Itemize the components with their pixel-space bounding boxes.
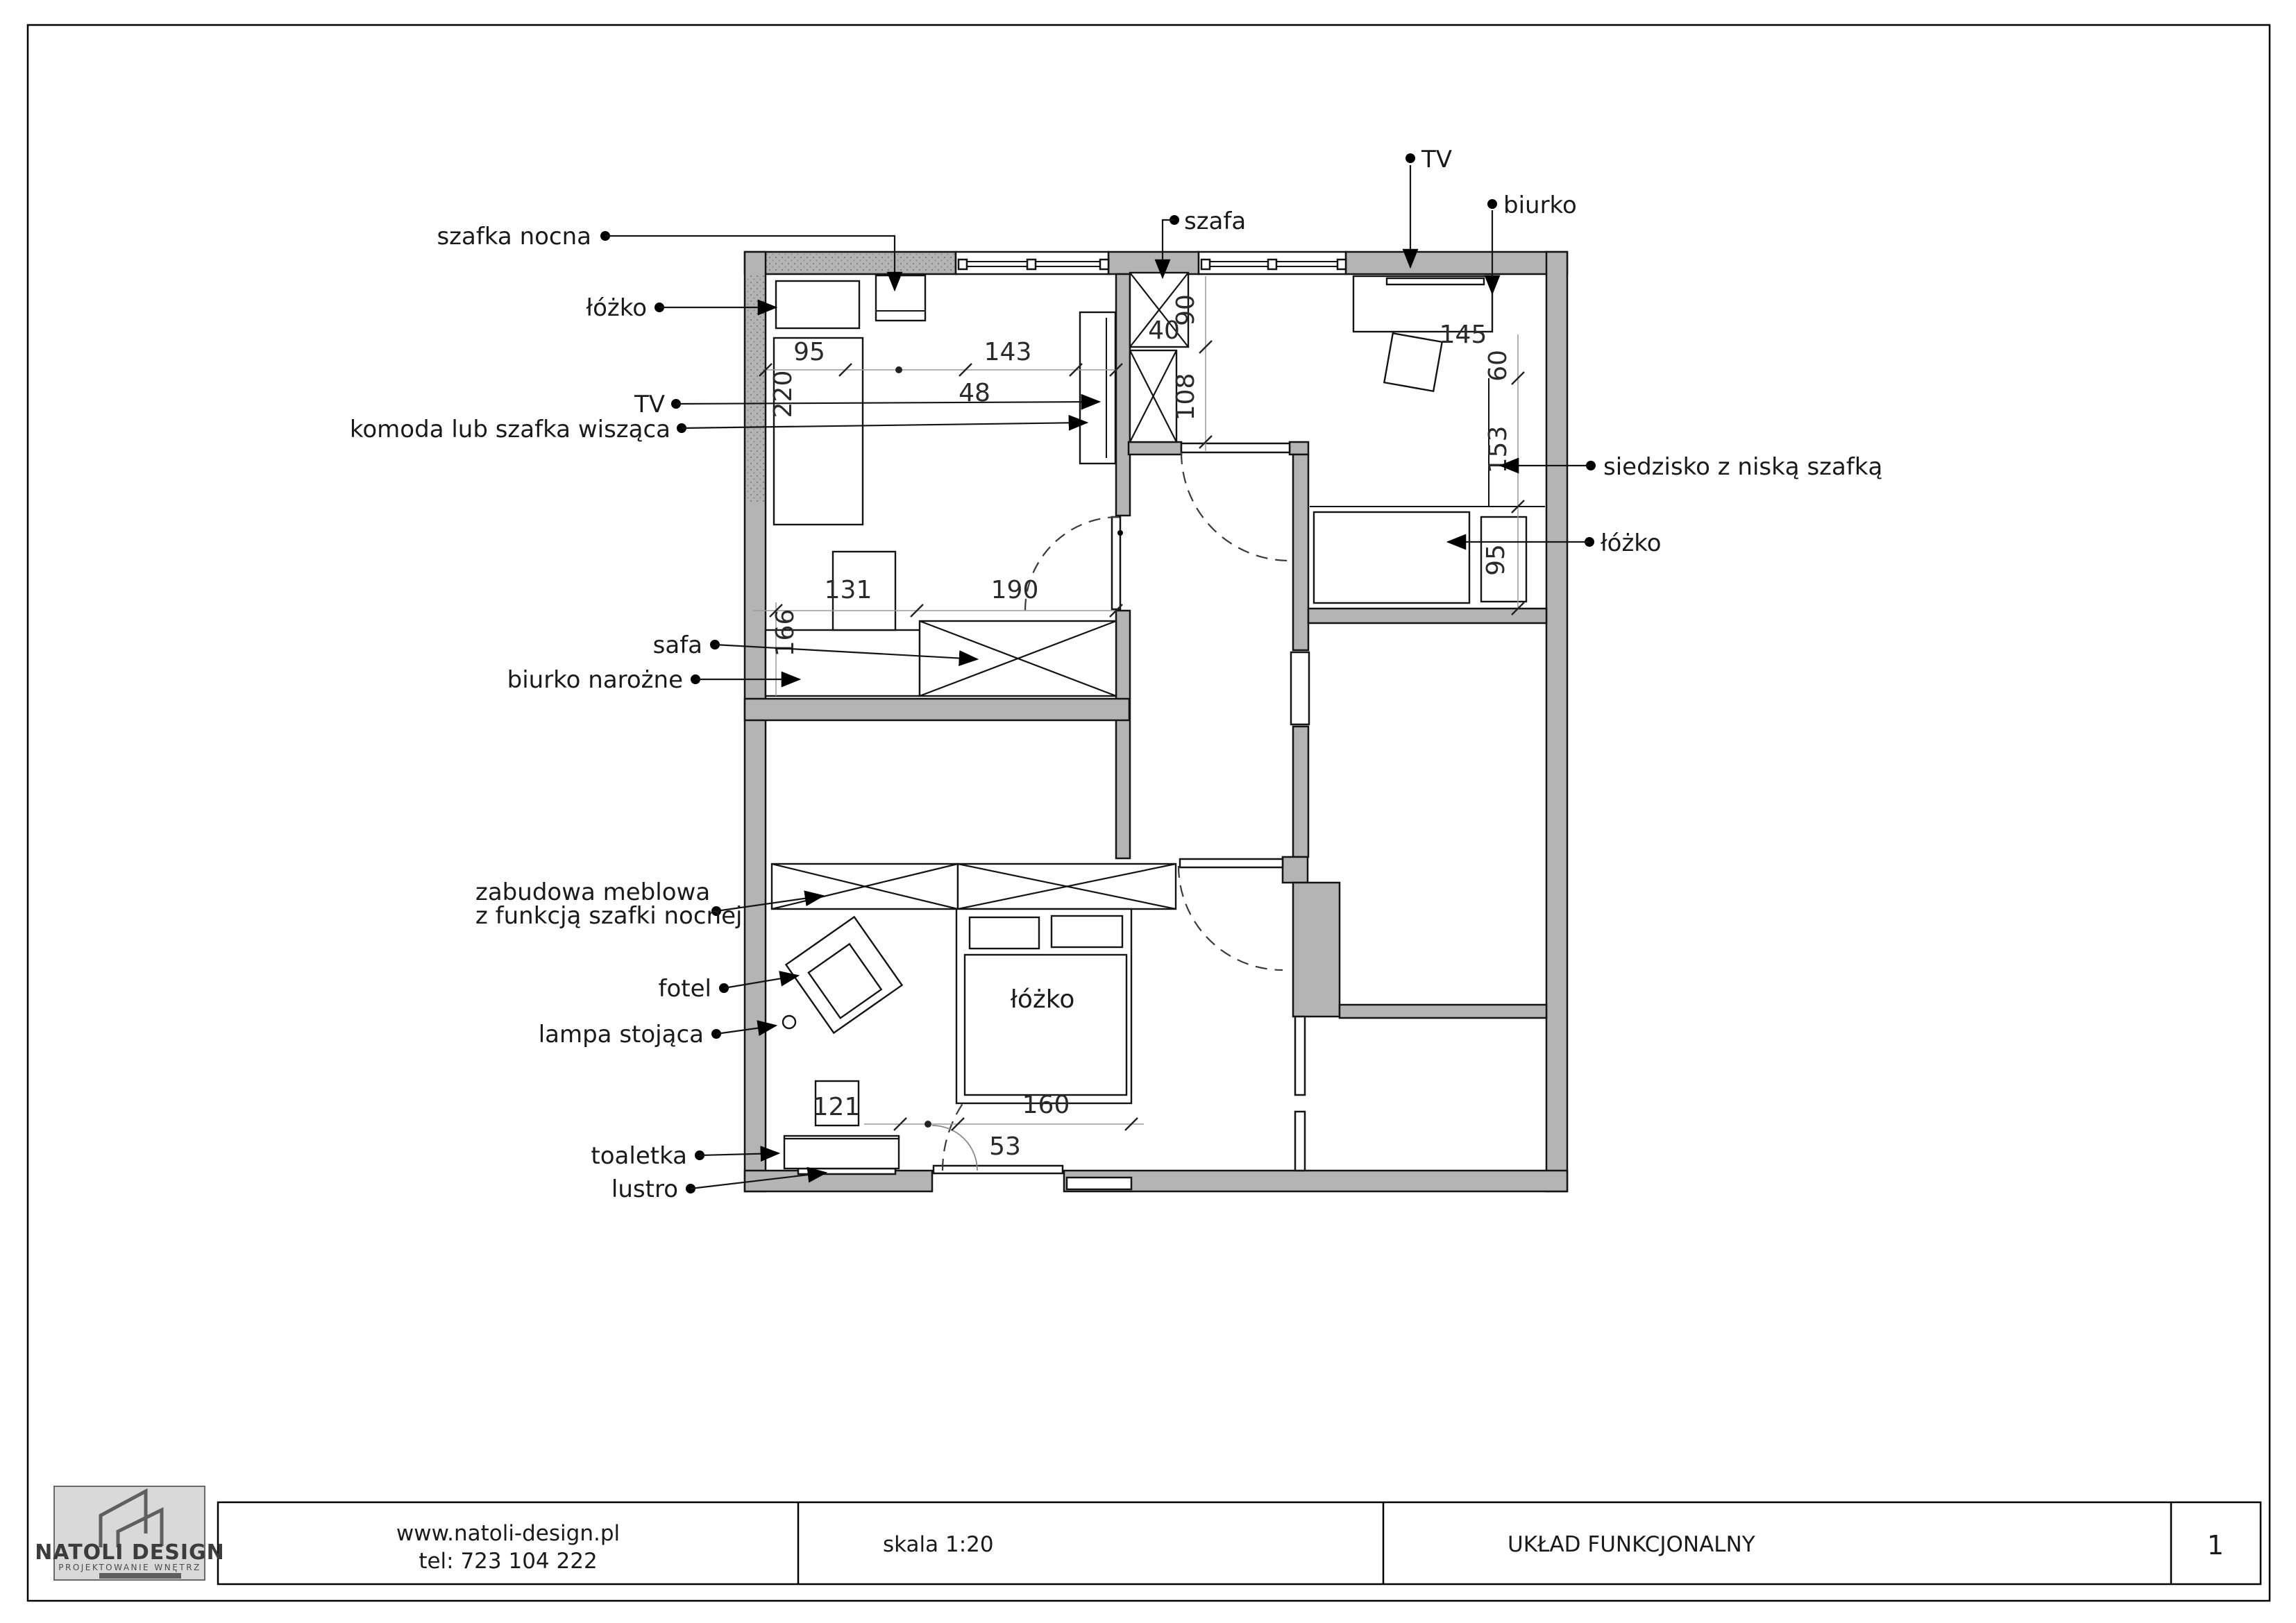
label-biurko: biurko [1503, 192, 1577, 219]
door-arc-bedroom2 [1179, 866, 1283, 970]
dim-90: 90 [1172, 294, 1200, 326]
label-toaletka: toaletka [591, 1142, 687, 1170]
floor-plan-drawing: 95 143 48 220 131 190 166 40 90 108 145 … [0, 0, 2296, 1623]
logo-company-subtitle: PROJEKTOWANIE WNĘTRZ [58, 1563, 201, 1572]
bed1-headboard [776, 281, 859, 328]
door-arc-balcony-leaf [932, 1125, 977, 1171]
dim-145: 145 [1440, 321, 1487, 349]
company-logo: NATOLI DESIGN PROJEKTOWANIE WNĘTRZ [35, 1486, 225, 1580]
dim-95-bed3: 95 [1482, 544, 1510, 576]
dim-220: 220 [769, 371, 797, 418]
footer-scale: skala 1:20 [883, 1532, 994, 1557]
floor-plan-sheet: 95 143 48 220 131 190 166 40 90 108 145 … [0, 0, 2296, 1623]
floor-lamp [783, 1016, 795, 1028]
dim-160: 160 [1022, 1091, 1070, 1119]
label-siedzisko: siedzisko z niską szafką [1603, 453, 1882, 481]
tv-sideboard [1080, 312, 1115, 464]
label-szafa: szafa [1184, 207, 1246, 235]
dim-131: 131 [825, 576, 872, 604]
door-arc-room1 [1025, 517, 1119, 611]
title-block: NATOLI DESIGN PROJEKTOWANIE WNĘTRZ www.n… [35, 1486, 2261, 1584]
desk-chair-room3 [1384, 333, 1442, 391]
tv-wall-room3 [1387, 278, 1484, 284]
logo-company-name: NATOLI DESIGN [35, 1540, 225, 1565]
footer-url: www.natoli-design.pl [396, 1521, 620, 1546]
armchair [786, 917, 902, 1033]
label-tv-room1: TV [634, 391, 665, 418]
label-lampa: lampa stojąca [539, 1021, 704, 1048]
dressing-table [784, 1136, 899, 1169]
dim-190: 190 [991, 576, 1039, 604]
dim-143: 143 [984, 338, 1032, 366]
label-komoda: komoda lub szafka wisząca [350, 416, 670, 443]
dim-121: 121 [813, 1093, 861, 1121]
label-lozko-room3: łóżko [1601, 529, 1662, 557]
label-tv-top: TV [1421, 146, 1452, 173]
label-szafka-nocna: szafka nocna [437, 223, 591, 250]
bed2-pillow-left [970, 917, 1039, 949]
nightstand [876, 275, 925, 321]
furniture-bedroom2 [772, 864, 1176, 1169]
label-lozko-bedroom2: łóżko [1011, 985, 1075, 1014]
label-zabudowa-line2: z funkcją szafki nocnej [475, 902, 742, 930]
footer-page-number: 1 [2207, 1530, 2224, 1561]
dim-108: 108 [1172, 373, 1200, 421]
bed2-pillow-right [1052, 916, 1122, 947]
label-lozko-room1: łóżko [586, 294, 647, 322]
bed3 [1314, 512, 1469, 603]
dim-60: 60 [1484, 350, 1512, 382]
footer-tel: tel: 723 104 222 [419, 1549, 597, 1574]
label-lustro: lustro [611, 1175, 678, 1203]
label-safa: safa [653, 631, 702, 659]
dim-53: 53 [989, 1132, 1021, 1161]
label-biurko-narozne: biurko narożne [507, 666, 683, 694]
dim-bed1-width: 95 [793, 338, 825, 366]
door-arc-room3 [1181, 452, 1290, 561]
label-fotel: fotel [659, 975, 711, 1003]
footer-drawing-title: UKŁAD FUNKCJONALNY [1508, 1532, 1755, 1557]
bed2-mattress [965, 955, 1126, 1095]
